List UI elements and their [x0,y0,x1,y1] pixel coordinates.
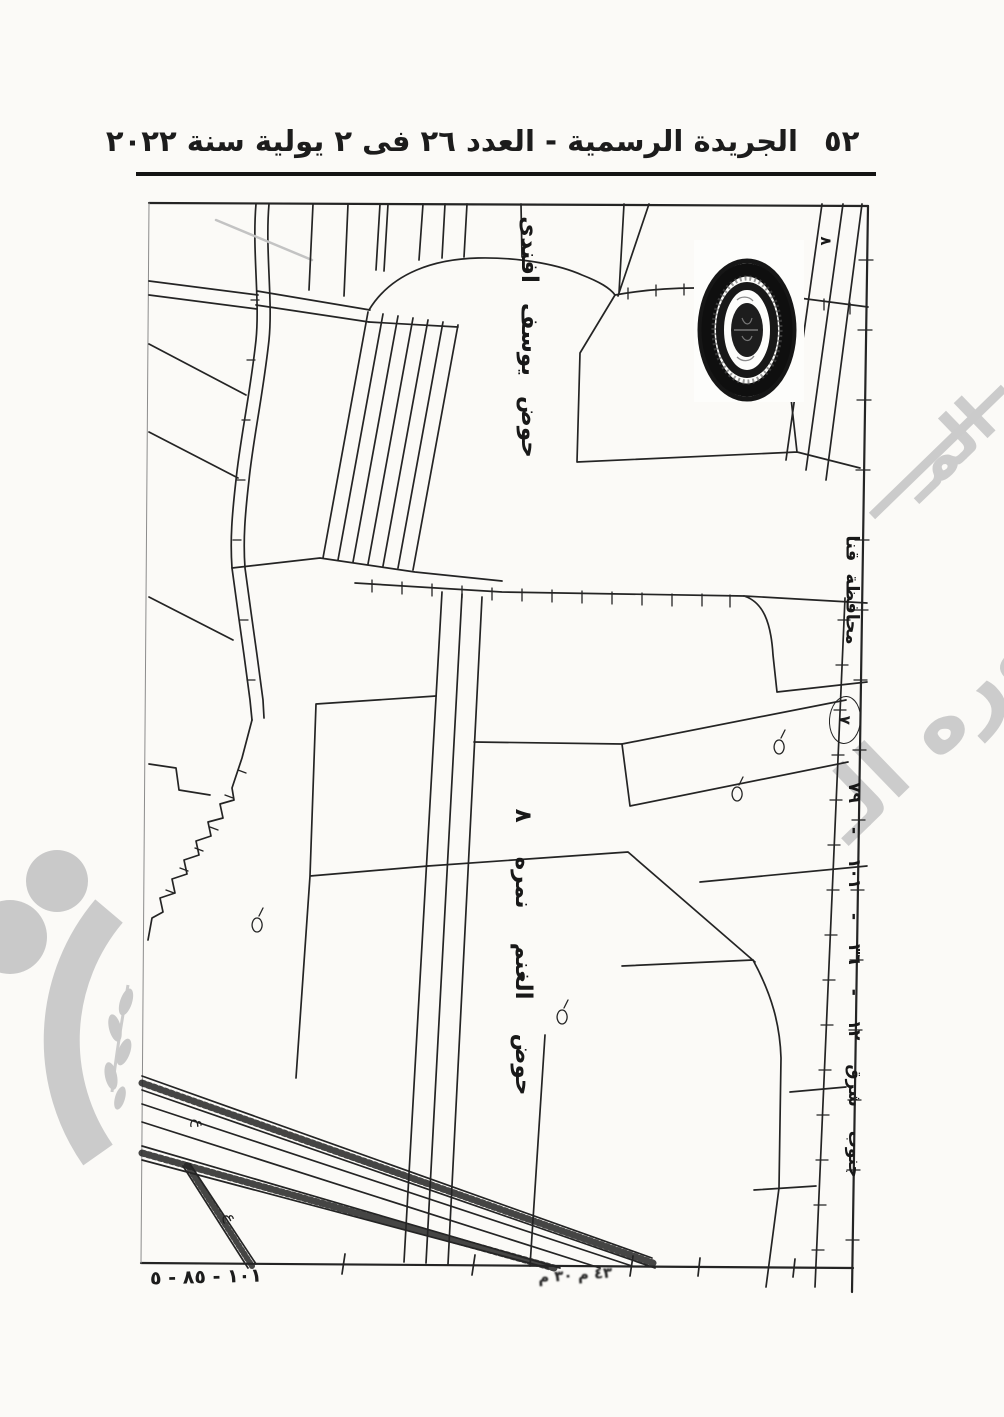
map-label-corner-number: ٨ [817,236,835,245]
map-label-governorate: محافظة قنا [842,535,863,644]
map-label-hod-yousef-afandi: حوض يوسف افندى [516,216,542,458]
map-label-sheet-direction: جنوب شرق ١٢ - ٣٦ - ١٠١ - ٧٩ [844,782,864,1177]
page-title: الجريدة الرسمية - العدد ٢٦ فى ٢ يولية سن… [106,124,798,158]
gazette-scanned-page: { "document": { "header": { "title": "ال… [0,0,1004,1417]
map-bottom-left-numbers: ١٠١ - ٨٥ - ٥ [150,1265,262,1290]
railway-bands [142,1035,795,1277]
official-seal-icon [694,240,804,402]
central-parcel-lines [296,580,867,1287]
canal-and-left-parcels [148,204,270,940]
watermark-slash [872,388,1004,516]
header-divider [136,172,876,176]
map-label-hod-number-8: حوض الغنم نمره ٨ [510,809,536,1096]
page-number: ٥٢ [824,124,859,158]
watermark-emblem-icon [0,850,136,1155]
circled-number-text: ٧ [836,715,855,725]
